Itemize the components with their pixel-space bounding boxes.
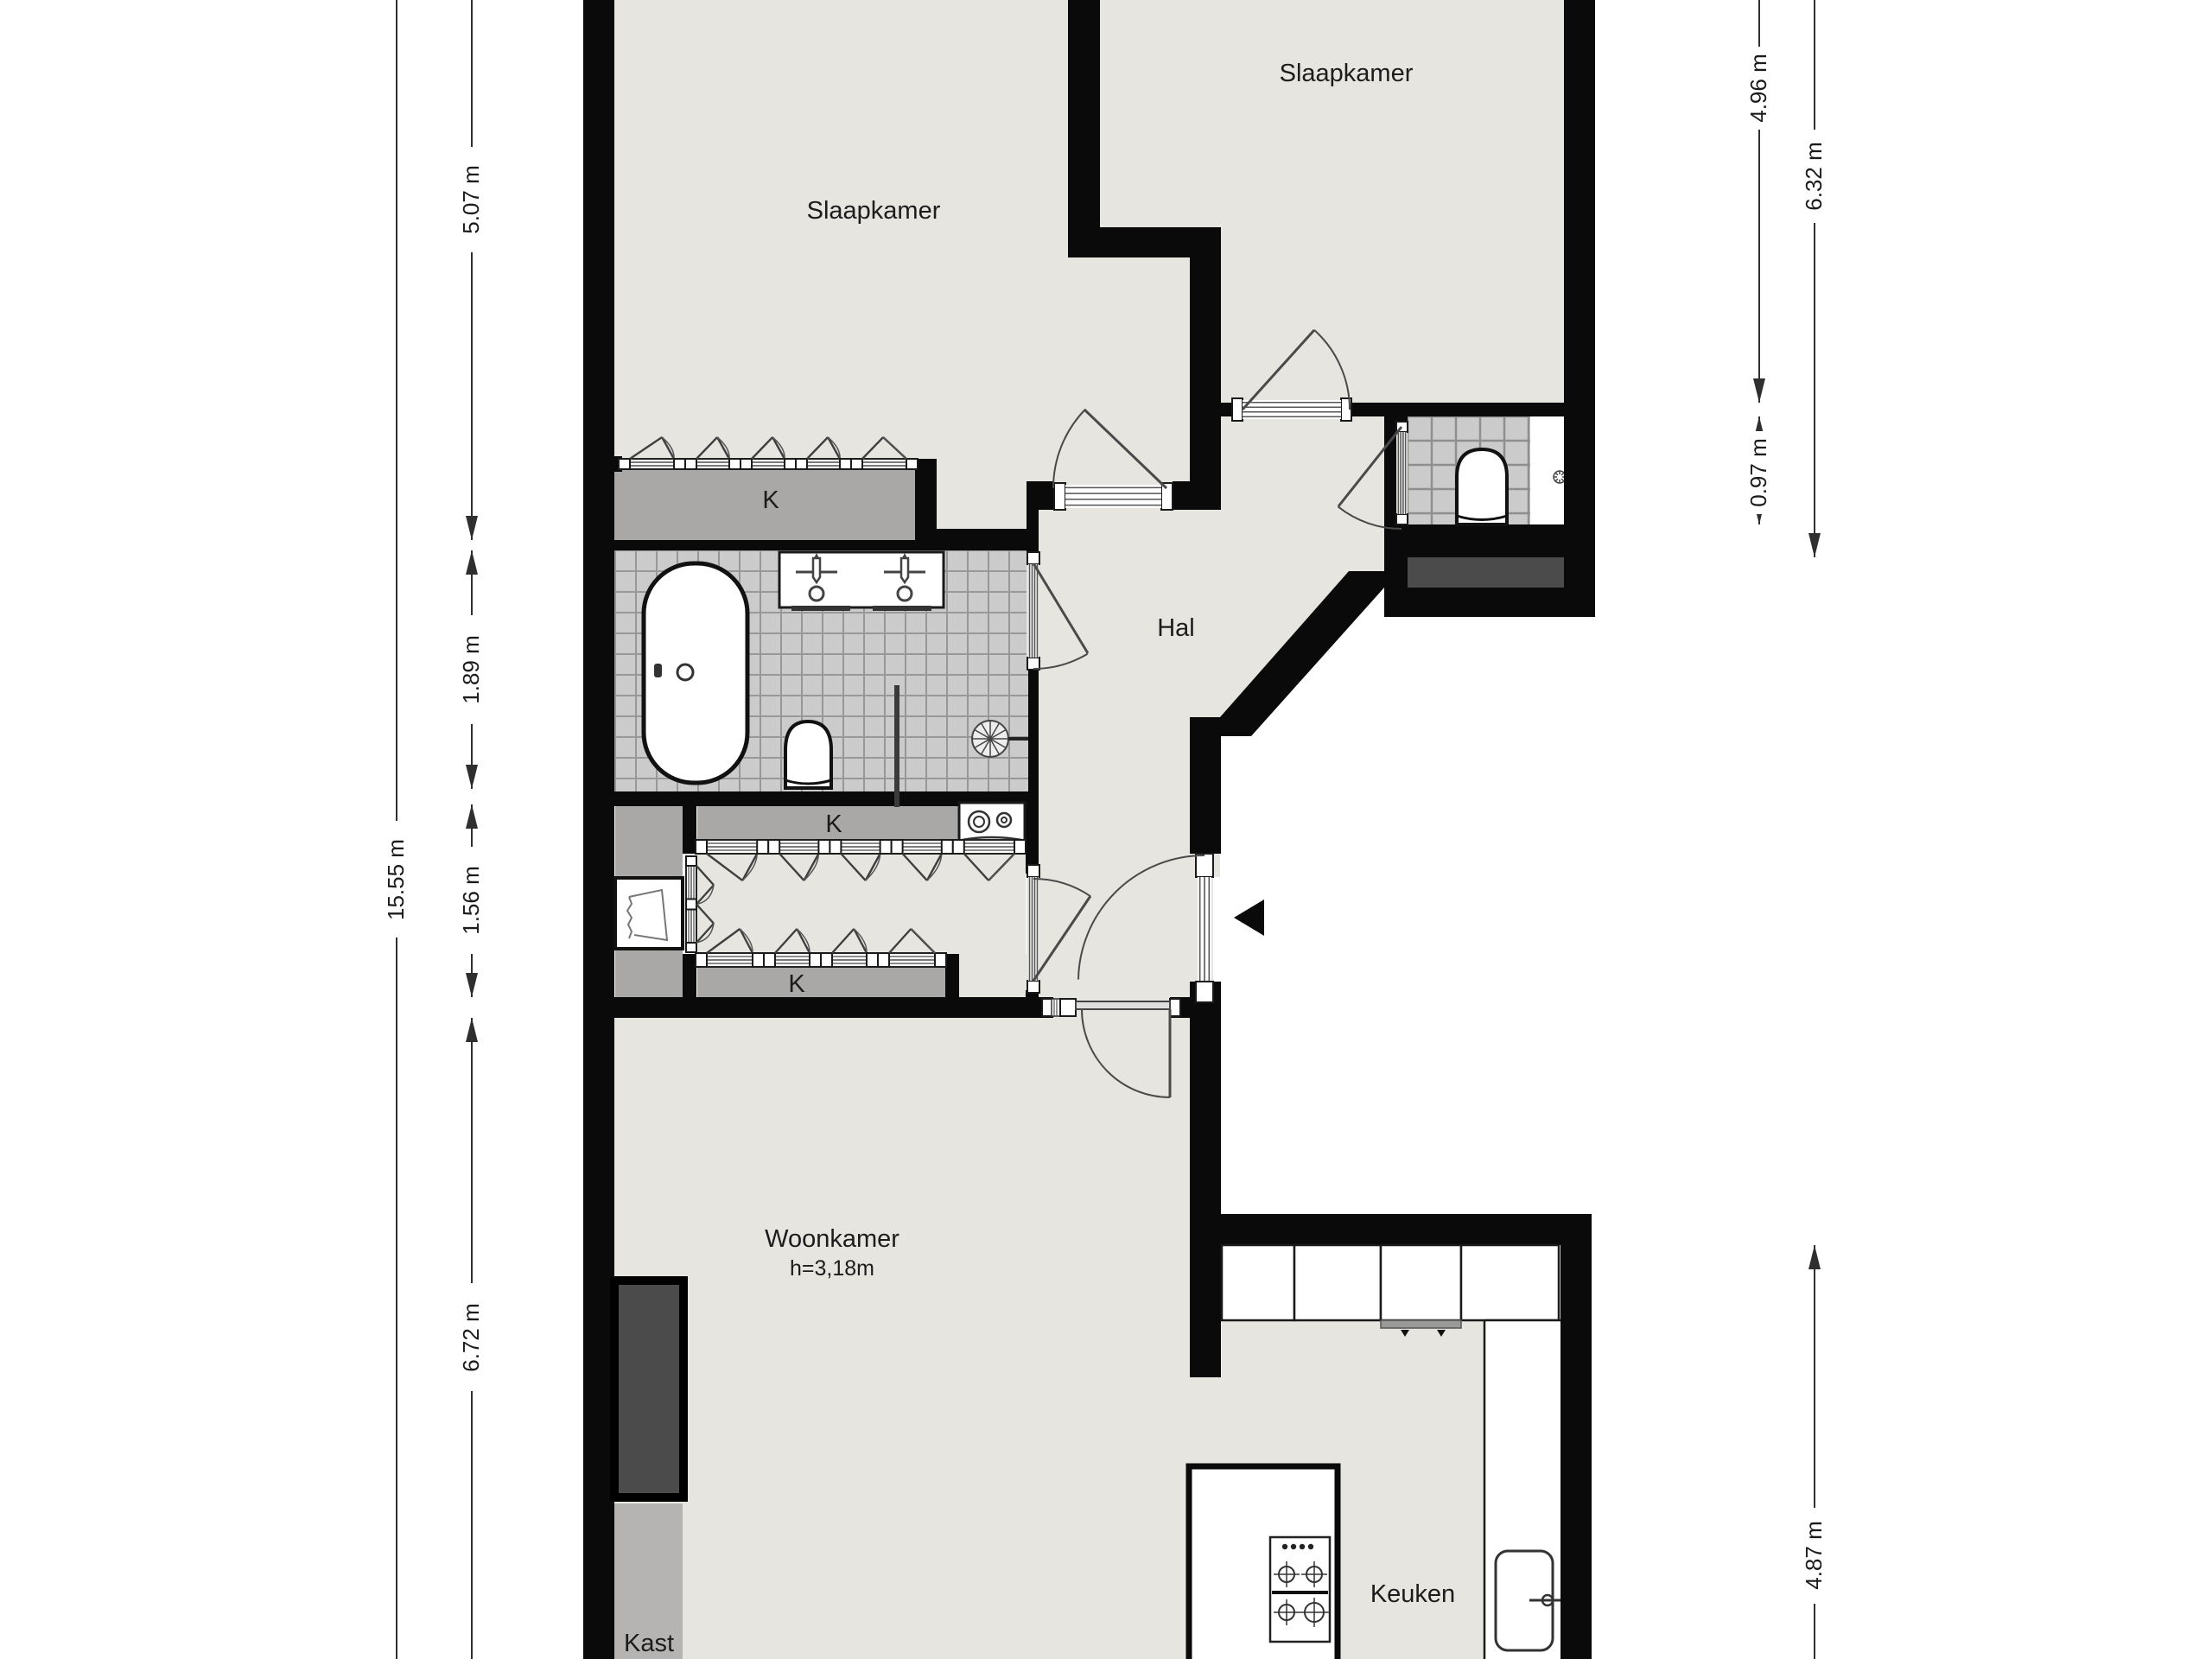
svg-text:Hal: Hal — [1157, 614, 1195, 642]
svg-text:1.89 m: 1.89 m — [458, 635, 484, 704]
svg-text:K: K — [762, 486, 779, 514]
svg-text:h=3,18m: h=3,18m — [790, 1256, 874, 1281]
svg-text:Slaapkamer: Slaapkamer — [807, 197, 941, 225]
svg-text:Slaapkamer: Slaapkamer — [1280, 60, 1414, 87]
svg-text:6.72 m: 6.72 m — [458, 1303, 484, 1372]
svg-text:0.97 m: 0.97 m — [1745, 438, 1771, 507]
svg-text:5.07 m: 5.07 m — [458, 165, 484, 234]
svg-text:Kast: Kast — [624, 1630, 674, 1657]
svg-text:K: K — [825, 810, 842, 838]
svg-text:Keuken: Keuken — [1370, 1580, 1455, 1608]
svg-text:Woonkamer: Woonkamer — [765, 1225, 899, 1253]
svg-text:6.32 m: 6.32 m — [1801, 142, 1827, 211]
svg-text:K: K — [788, 970, 805, 998]
svg-text:4.96 m: 4.96 m — [1745, 54, 1771, 123]
svg-text:4.87 m: 4.87 m — [1801, 1521, 1827, 1590]
svg-text:1.56 m: 1.56 m — [458, 866, 484, 935]
svg-text:15.55 m: 15.55 m — [383, 839, 409, 920]
